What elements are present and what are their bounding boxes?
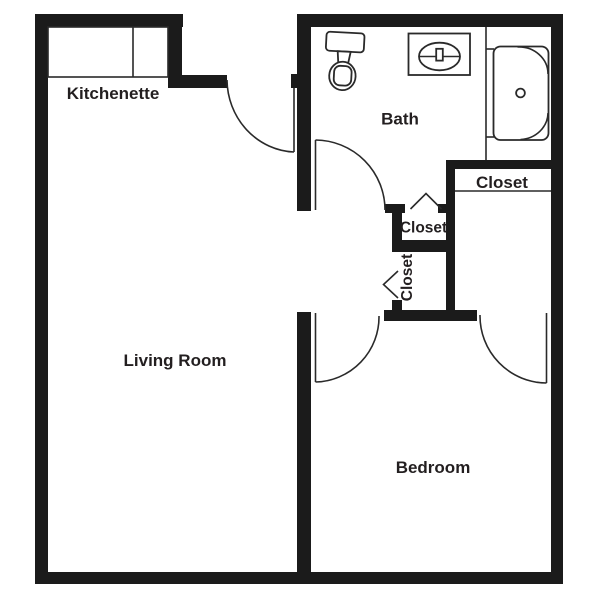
kitchenette-counter [48, 27, 168, 77]
wall-top-bath [297, 14, 563, 27]
wall-top-kitchenette [35, 14, 183, 27]
floor-plan: Kitchenette Bath Living Room Bedroom Clo… [0, 0, 600, 600]
toilet [324, 32, 365, 92]
bedroom-label: Bedroom [396, 458, 471, 477]
living-room-label: Living Room [124, 351, 227, 370]
wall-center-lower [297, 312, 311, 576]
wall-outer-right [551, 14, 563, 584]
closet-door-upper [411, 194, 442, 210]
bedroom-door-swing [316, 316, 380, 382]
entry-door-swing [227, 80, 294, 152]
wall-entry-hinge-stub [291, 74, 300, 88]
closet-upper-label: Closet [400, 220, 447, 237]
floor-plan-drawing: Kitchenette Bath Living Room Bedroom Clo… [0, 0, 600, 600]
bedroom-door [316, 313, 380, 382]
wall-closet-divider [392, 240, 454, 252]
closet-bedroom-door-swing [480, 315, 547, 383]
wall-outer-left [35, 14, 48, 584]
sink [409, 34, 471, 76]
toilet-tank [326, 32, 365, 53]
bathtub-shower [486, 27, 549, 160]
bath-label: Bath [381, 110, 419, 129]
closet-door-bedroom [480, 313, 547, 383]
bath-door [316, 140, 386, 210]
wall-entry-stub [168, 75, 227, 88]
toilet-seat [333, 66, 351, 86]
closet-door-lower [384, 271, 399, 298]
closet-right-label: Closet [476, 173, 528, 192]
entry-door [227, 80, 294, 152]
sink-faucet [436, 49, 443, 61]
bath-door-swing [316, 140, 386, 210]
wall-bedroom-top [384, 310, 477, 321]
wall-center-upper [297, 14, 311, 211]
closet-lower-label: Closet [399, 254, 416, 301]
tub-drain [516, 89, 525, 98]
wall-closet-upper-right-stub [438, 204, 447, 213]
wall-closet-right-top [446, 160, 551, 169]
kitchenette-label: Kitchenette [67, 84, 160, 103]
counter-outline [48, 27, 168, 77]
